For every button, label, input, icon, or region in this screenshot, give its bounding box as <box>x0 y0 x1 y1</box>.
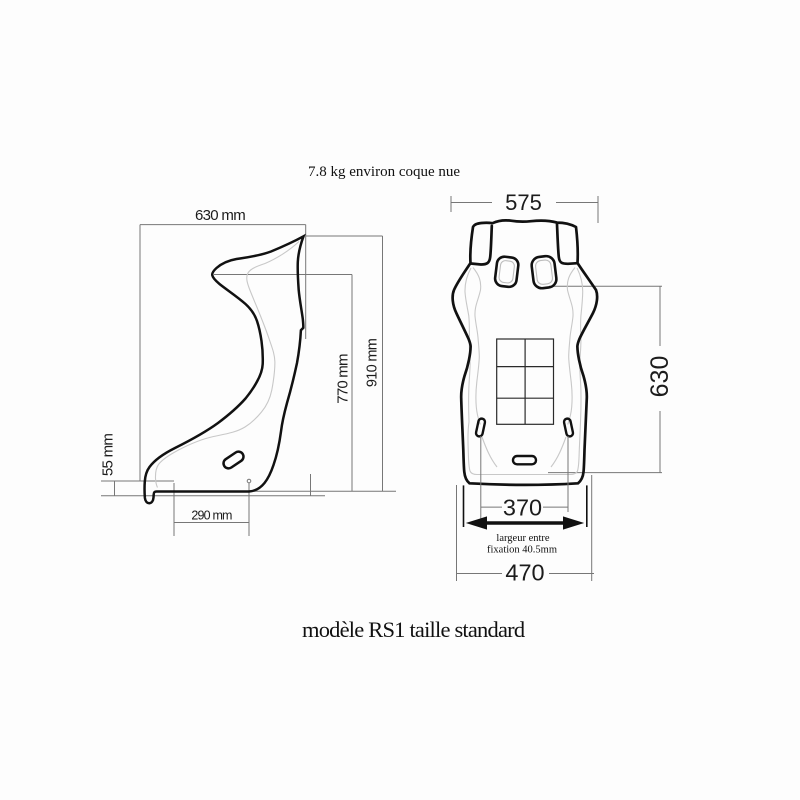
svg-text:290 mm: 290 mm <box>191 509 232 523</box>
svg-text:fixation 40.5mm: fixation 40.5mm <box>487 545 557 556</box>
svg-text:modèle RS1 taille standard: modèle RS1 taille standard <box>302 617 525 642</box>
svg-text:largeur entre: largeur entre <box>496 533 549 544</box>
svg-text:370: 370 <box>503 495 542 521</box>
svg-text:7.8 kg environ coque nue: 7.8 kg environ coque nue <box>308 164 460 180</box>
svg-text:910 mm: 910 mm <box>365 338 381 387</box>
svg-text:770 mm: 770 mm <box>335 354 352 404</box>
svg-text:630: 630 <box>646 356 674 398</box>
svg-text:55 mm: 55 mm <box>100 434 117 477</box>
svg-text:575: 575 <box>505 190 542 215</box>
svg-text:630 mm: 630 mm <box>195 207 245 224</box>
svg-text:470: 470 <box>505 560 544 586</box>
